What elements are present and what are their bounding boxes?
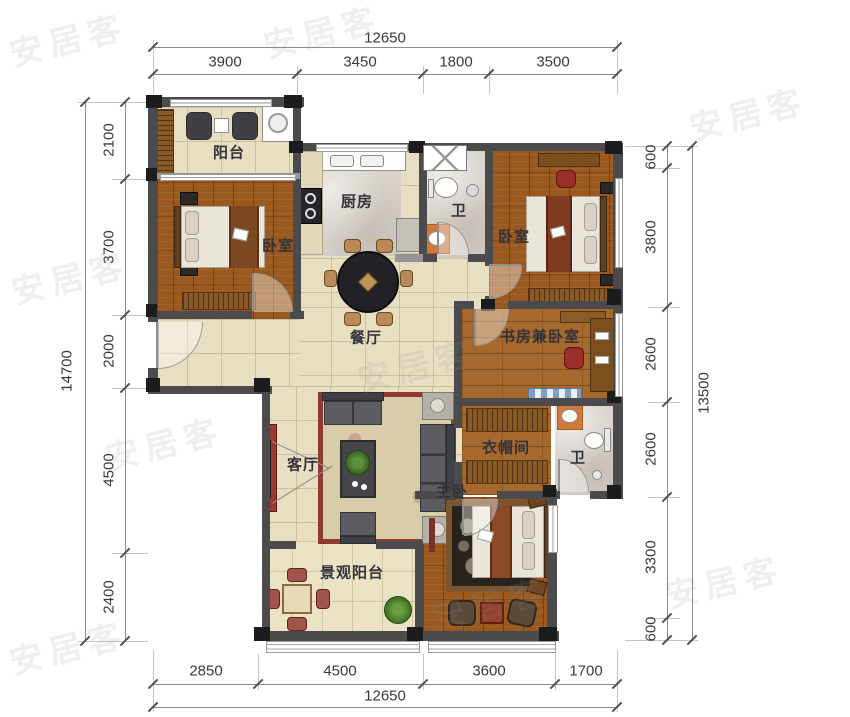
window	[316, 144, 408, 152]
desk	[590, 318, 614, 392]
room-label-balcony: 阳台	[213, 142, 245, 163]
window	[615, 178, 623, 268]
patio-table	[282, 584, 312, 614]
dim-top-total: 12650	[364, 30, 406, 47]
dim-top-seg: 3900	[208, 54, 241, 71]
dimension-line	[153, 684, 617, 685]
dim-right-total: 13500	[696, 372, 713, 414]
patio-chair	[287, 568, 307, 582]
pillow	[522, 511, 535, 539]
window	[615, 313, 623, 397]
wall-segment	[485, 143, 493, 266]
room-label-bedroom-right: 卧室	[498, 226, 530, 247]
dimension-line	[667, 146, 668, 640]
dimension-line	[125, 102, 126, 641]
wall-corner-block	[407, 627, 423, 641]
cup	[361, 484, 367, 490]
washer-drum-icon	[268, 113, 288, 133]
nightstand	[180, 192, 198, 205]
wall-corner-block	[146, 378, 160, 392]
dining-chair	[344, 239, 361, 253]
dimension-line	[692, 146, 693, 640]
floor-drain-icon	[592, 470, 602, 480]
wardrobe	[466, 460, 548, 484]
toilet-bowl	[584, 432, 604, 449]
dim-right-seg: 600	[643, 616, 660, 641]
dim-left-seg: 4500	[101, 453, 118, 486]
wall-art	[429, 518, 435, 552]
pillow	[584, 236, 597, 264]
dim-left-seg: 2100	[101, 123, 118, 156]
dim-left-seg: 2000	[101, 334, 118, 367]
paper	[595, 356, 609, 364]
loveseat	[324, 401, 382, 425]
lamp-icon	[430, 398, 445, 413]
dim-left-seg: 3700	[101, 230, 118, 263]
plant	[384, 596, 412, 624]
dimension-line	[85, 102, 86, 641]
armchair	[506, 597, 539, 628]
extension-line	[112, 388, 148, 389]
pillow	[185, 238, 199, 262]
dim-bottom-total: 12650	[364, 688, 406, 705]
dim-bottom-seg: 2850	[189, 663, 222, 680]
bed-headboard	[600, 196, 607, 272]
dresser	[538, 153, 600, 167]
wall-segment	[262, 386, 270, 641]
bay-window	[266, 641, 420, 653]
wall-segment	[454, 301, 474, 309]
wall-corner-block	[607, 485, 621, 499]
pillow	[522, 542, 535, 570]
wall-segment	[508, 301, 621, 309]
dimension-line	[153, 707, 617, 708]
wall-corner-block	[254, 378, 270, 392]
room-label-closet: 衣帽间	[482, 437, 530, 458]
room-label-master: 主卧	[436, 481, 468, 502]
dim-left-total: 14700	[59, 350, 76, 392]
dim-top-seg: 3450	[343, 54, 376, 71]
watermark: 安居客	[684, 74, 812, 150]
dim-bottom-seg: 3600	[472, 663, 505, 680]
bay-window	[428, 641, 556, 653]
pillow	[584, 203, 597, 231]
wall-corner-block	[146, 95, 162, 108]
balcony-chair	[232, 112, 258, 140]
dim-right-seg: 600	[643, 144, 660, 169]
extension-line	[78, 102, 148, 103]
shower-icon	[466, 184, 479, 197]
room-label-study: 书房兼卧室	[500, 326, 580, 347]
extension-line	[112, 315, 148, 316]
extension-line	[112, 179, 148, 180]
shaft-flue	[423, 145, 467, 171]
dining-chair	[324, 270, 337, 287]
dim-top-seg: 3500	[536, 54, 569, 71]
wall-segment	[262, 541, 296, 549]
wall-segment	[454, 309, 462, 398]
window	[548, 505, 558, 553]
dim-bottom-seg: 1700	[569, 663, 602, 680]
wall-segment	[454, 398, 462, 428]
dining-chair	[376, 312, 393, 326]
burner-icon	[305, 193, 316, 204]
nightstand	[600, 182, 614, 194]
sink-basin	[360, 155, 384, 167]
wall-corner-block	[146, 168, 157, 181]
plant	[345, 450, 370, 475]
wall-corner-block	[254, 627, 270, 641]
wall-segment-light	[395, 254, 423, 262]
wall-corner-block	[539, 627, 557, 641]
wall-segment	[376, 541, 423, 549]
dim-right-seg: 3800	[643, 220, 660, 253]
tea-table	[480, 602, 504, 624]
wall-corner-block	[146, 304, 157, 317]
nightstand	[600, 274, 614, 286]
room-label-dining: 餐厅	[350, 327, 382, 348]
dining-chair	[344, 312, 361, 326]
room-label-bath-mid: 卫	[570, 447, 586, 468]
dim-right-seg: 2600	[643, 432, 660, 465]
sink-basin	[561, 409, 578, 423]
bed-headboard	[174, 206, 181, 268]
extension-line	[78, 641, 148, 642]
room-label-bath-top: 卫	[451, 200, 467, 221]
dim-right-seg: 3300	[643, 540, 660, 573]
toilet-tank	[604, 428, 611, 452]
wall-corner-block	[543, 485, 556, 497]
window	[170, 99, 272, 107]
sink-basin	[330, 155, 354, 167]
wall-segment	[293, 99, 301, 311]
loveseat-back	[322, 392, 384, 401]
paper	[595, 332, 609, 340]
pillow	[185, 211, 199, 235]
wall-segment	[423, 254, 437, 262]
balcony-chair	[186, 112, 212, 140]
wall-segment	[454, 398, 621, 406]
armchair	[340, 512, 376, 536]
room-label-kitchen: 厨房	[341, 191, 373, 212]
wardrobe	[466, 408, 548, 432]
room-label-living: 客厅	[287, 454, 319, 475]
dim-bottom-seg: 4500	[323, 663, 356, 680]
balcony-table	[214, 118, 229, 133]
patio-chair	[287, 617, 307, 631]
dining-chair	[376, 239, 393, 253]
wall-corner-block	[607, 289, 621, 305]
watermark: 安居客	[100, 404, 228, 480]
dimension-line	[153, 74, 617, 75]
burner-icon	[305, 208, 316, 219]
wall-segment	[290, 311, 304, 319]
dim-right-seg: 2600	[643, 337, 660, 370]
watermark: 安居客	[660, 542, 788, 618]
wardrobe	[182, 292, 256, 310]
armchair-back	[340, 536, 376, 544]
balcony-slider	[160, 174, 296, 181]
patio-chair	[316, 589, 330, 609]
drying-rack	[156, 109, 174, 177]
wall-segment	[148, 311, 252, 319]
toilet-bowl	[434, 177, 458, 198]
wall-segment	[415, 541, 423, 641]
extension-line	[112, 553, 148, 554]
red-chair	[556, 170, 576, 188]
extension-line	[625, 640, 698, 641]
watermark: 安居客	[4, 608, 132, 684]
wall-corner-block	[605, 141, 622, 154]
watermark: 安居客	[4, 0, 132, 76]
dim-left-seg: 2400	[101, 580, 118, 613]
armchair	[448, 600, 476, 626]
red-chair	[564, 347, 584, 369]
floor-plan-page: 阳台 卧室 厨房 卫 卧室 餐厅 书房兼卧室 客厅 衣帽间 卫 主卧 景观阳台 …	[0, 0, 850, 717]
extension-line	[625, 146, 698, 147]
cup	[352, 481, 358, 487]
dining-chair	[400, 270, 413, 287]
room-label-view-balcony: 景观阳台	[320, 562, 384, 583]
dim-top-seg: 1800	[439, 54, 472, 71]
wall-segment	[468, 254, 489, 262]
room-label-bedroom-left: 卧室	[262, 235, 294, 256]
dimension-line	[153, 47, 617, 48]
wall-corner-block	[284, 95, 302, 108]
wall-corner-block	[289, 141, 303, 153]
